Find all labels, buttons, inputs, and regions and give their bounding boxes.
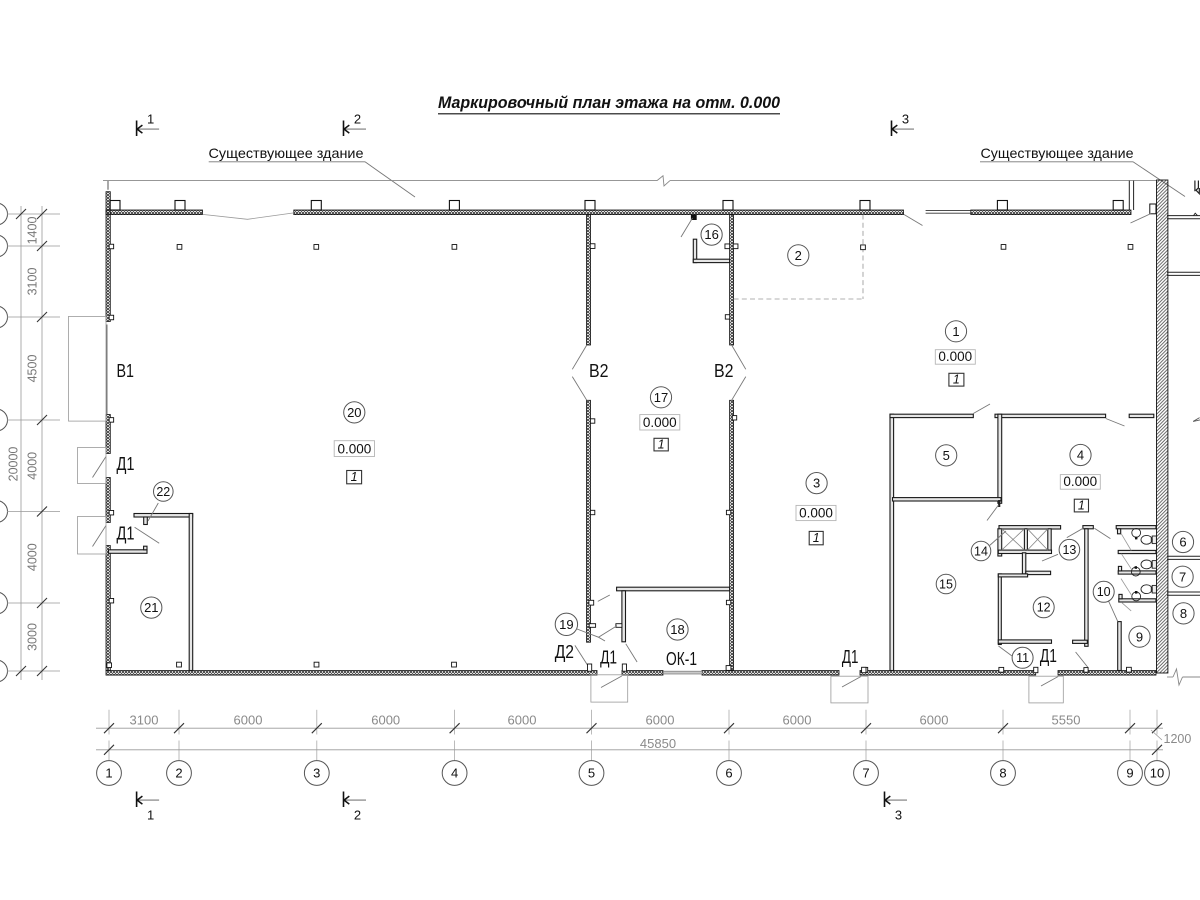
- svg-text:Маркировочный план этажа на от: Маркировочный план этажа на отм. 0.000: [438, 93, 781, 112]
- svg-text:4: 4: [451, 766, 458, 781]
- svg-text:5: 5: [943, 448, 950, 463]
- svg-text:11: 11: [1016, 651, 1029, 665]
- svg-text:1: 1: [952, 324, 959, 339]
- svg-text:0.000: 0.000: [643, 415, 677, 430]
- svg-text:Д1: Д1: [117, 524, 135, 544]
- svg-text:1: 1: [105, 766, 112, 781]
- svg-text:Существующее здание: Существующее здание: [981, 145, 1134, 161]
- svg-text:6000: 6000: [646, 713, 675, 728]
- svg-text:В2: В2: [714, 361, 734, 381]
- svg-text:1: 1: [813, 531, 820, 545]
- svg-text:45850: 45850: [640, 736, 676, 751]
- svg-text:6000: 6000: [371, 713, 400, 728]
- svg-text:Д1: Д1: [600, 648, 617, 668]
- svg-text:В1: В1: [117, 361, 135, 381]
- svg-text:13: 13: [1062, 543, 1076, 557]
- svg-text:0.000: 0.000: [337, 441, 371, 456]
- svg-text:18: 18: [670, 622, 684, 637]
- svg-text:7: 7: [862, 766, 869, 781]
- svg-text:9: 9: [1136, 629, 1143, 644]
- svg-text:8: 8: [999, 766, 1006, 781]
- svg-text:1: 1: [953, 373, 960, 387]
- svg-text:0.000: 0.000: [938, 349, 972, 364]
- svg-text:3: 3: [813, 476, 820, 491]
- svg-text:В2: В2: [589, 361, 609, 381]
- svg-text:6: 6: [1179, 535, 1186, 550]
- svg-text:8: 8: [1180, 606, 1187, 621]
- svg-text:14: 14: [974, 544, 988, 558]
- svg-text:1: 1: [658, 437, 665, 451]
- svg-text:2: 2: [354, 808, 361, 823]
- svg-text:5: 5: [588, 766, 595, 781]
- svg-text:6000: 6000: [234, 713, 263, 728]
- svg-text:2: 2: [354, 111, 361, 126]
- svg-text:3100: 3100: [26, 268, 40, 296]
- svg-text:15: 15: [939, 577, 953, 591]
- svg-text:2: 2: [175, 766, 182, 781]
- svg-text:Существующее здание: Существующее здание: [209, 145, 364, 161]
- svg-text:9: 9: [1126, 766, 1133, 781]
- svg-text:21: 21: [144, 600, 158, 615]
- svg-text:12: 12: [1037, 601, 1051, 615]
- svg-text:4000: 4000: [26, 452, 40, 480]
- svg-text:6000: 6000: [508, 713, 537, 728]
- svg-text:6000: 6000: [783, 713, 812, 728]
- svg-text:3100: 3100: [130, 713, 159, 728]
- svg-text:4500: 4500: [26, 355, 40, 383]
- svg-text:0.000: 0.000: [799, 505, 833, 520]
- svg-text:Д2: Д2: [555, 642, 574, 662]
- svg-text:22: 22: [156, 485, 170, 499]
- svg-text:6: 6: [725, 766, 732, 781]
- svg-text:19: 19: [559, 617, 573, 632]
- svg-text:1200: 1200: [1164, 732, 1192, 746]
- svg-text:1: 1: [147, 111, 154, 126]
- svg-text:1400: 1400: [26, 217, 40, 245]
- svg-text:17: 17: [654, 390, 668, 405]
- svg-text:Д1: Д1: [1040, 646, 1057, 666]
- svg-text:2: 2: [795, 248, 802, 263]
- svg-text:5550: 5550: [1052, 713, 1081, 728]
- svg-text:16: 16: [704, 227, 718, 242]
- svg-text:ОК-1: ОК-1: [666, 649, 697, 669]
- svg-text:4: 4: [1077, 448, 1084, 463]
- svg-text:6000: 6000: [920, 713, 949, 728]
- svg-text:10: 10: [1150, 766, 1164, 781]
- svg-text:Д1: Д1: [117, 454, 135, 474]
- svg-text:3: 3: [902, 111, 909, 126]
- svg-text:1: 1: [147, 808, 154, 823]
- svg-text:3: 3: [895, 808, 902, 823]
- svg-text:20: 20: [347, 405, 361, 420]
- svg-text:20000: 20000: [7, 447, 21, 482]
- svg-text:7: 7: [1179, 569, 1186, 584]
- svg-text:3: 3: [313, 766, 320, 781]
- svg-text:4000: 4000: [26, 543, 40, 571]
- svg-text:1: 1: [351, 470, 358, 484]
- svg-text:1: 1: [1078, 498, 1085, 512]
- svg-text:0.000: 0.000: [1063, 474, 1097, 489]
- svg-text:3000: 3000: [26, 623, 40, 651]
- svg-text:Д1: Д1: [842, 647, 859, 667]
- svg-text:10: 10: [1097, 585, 1111, 599]
